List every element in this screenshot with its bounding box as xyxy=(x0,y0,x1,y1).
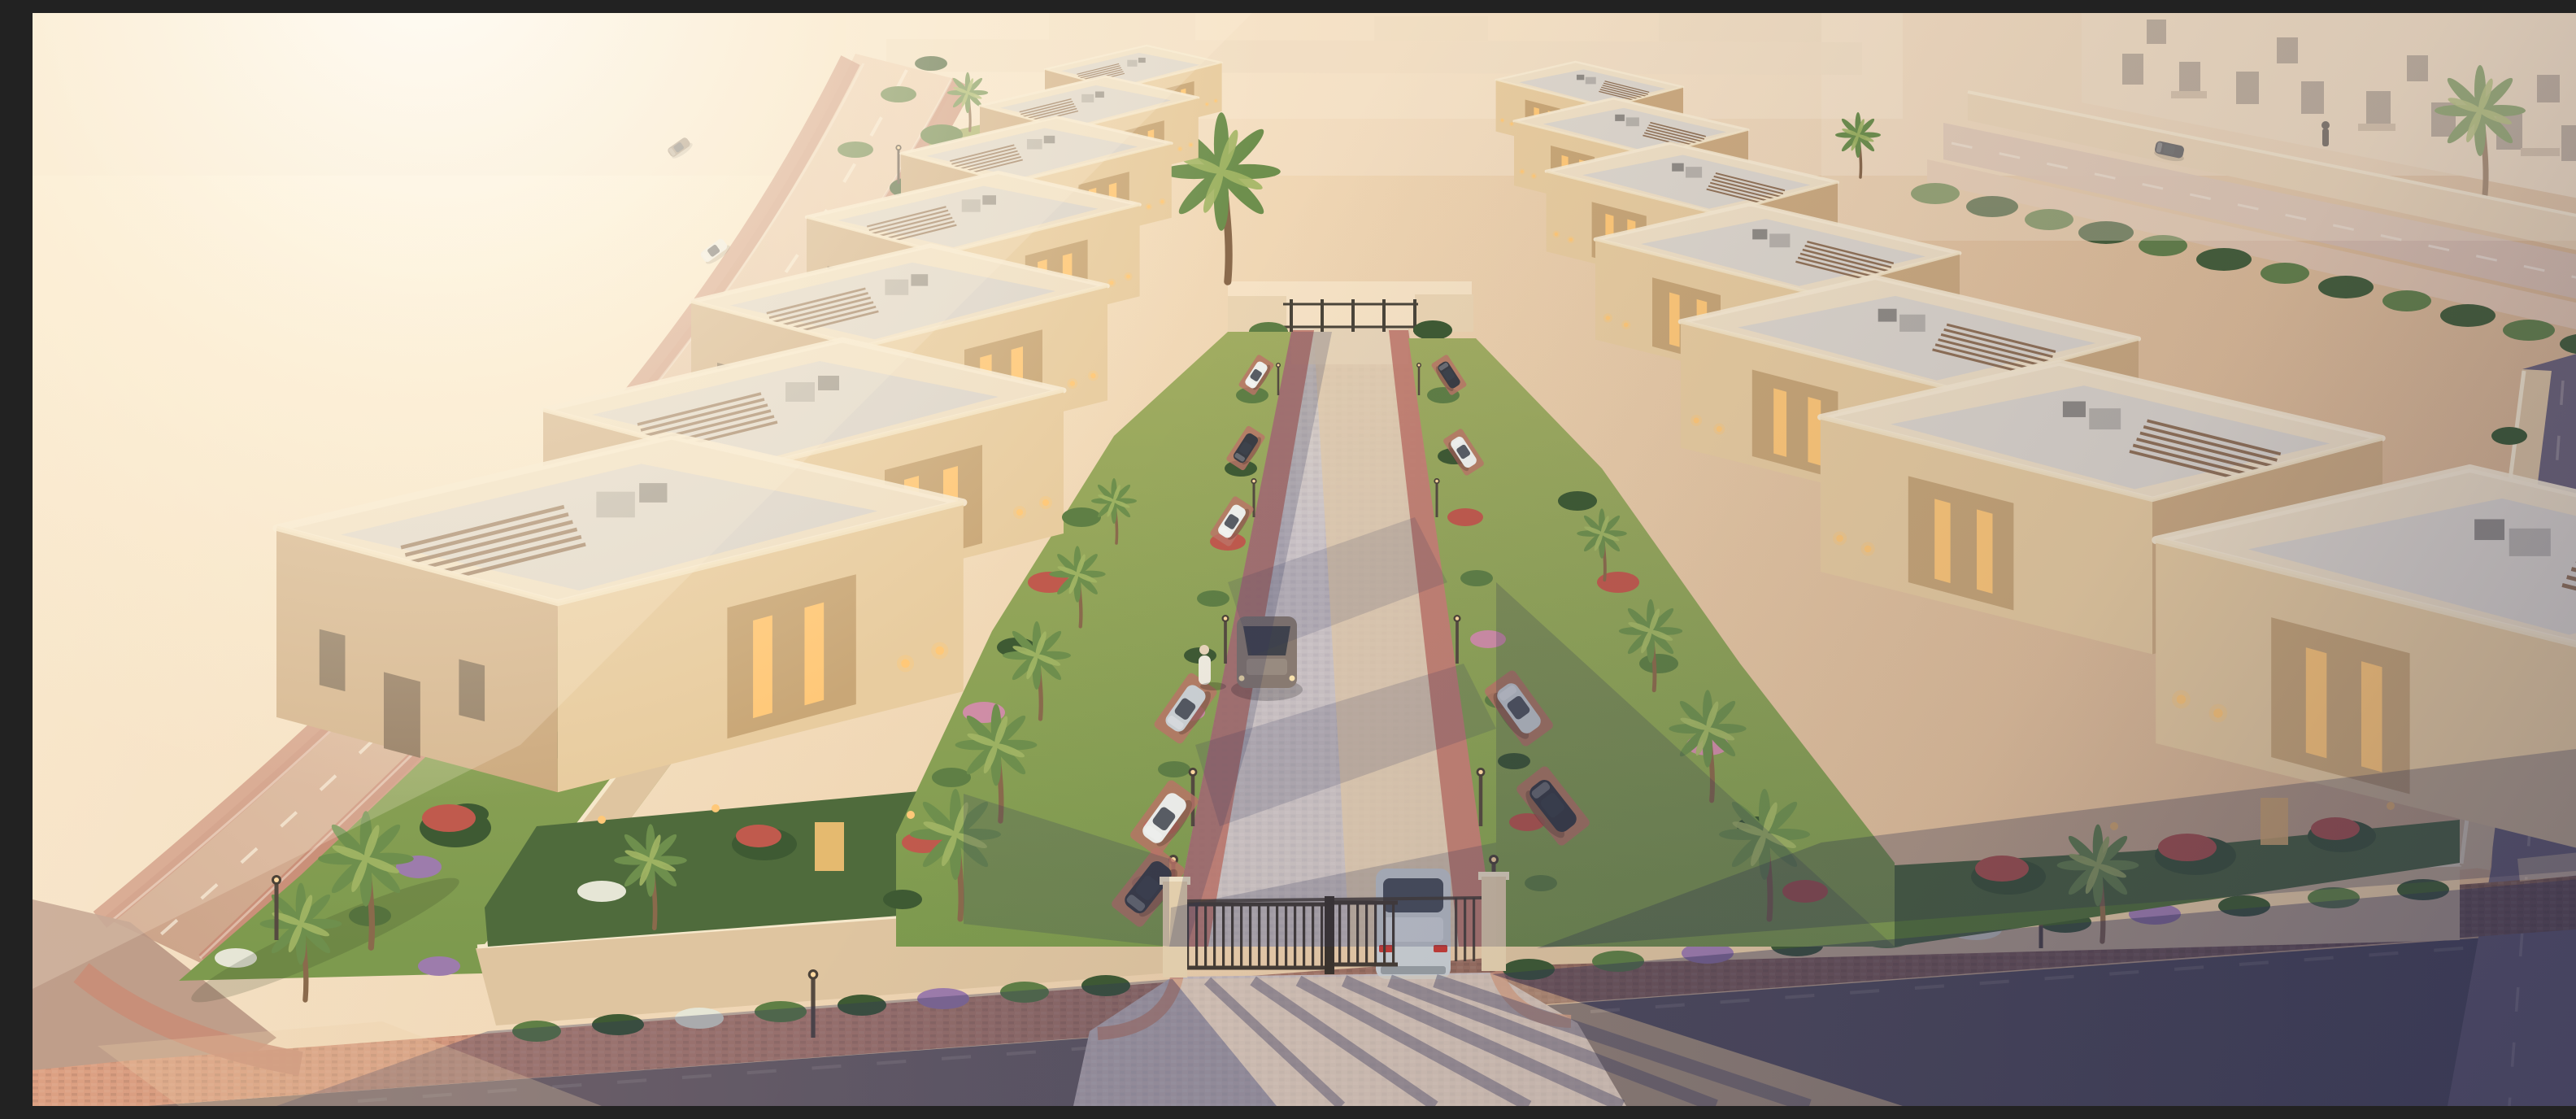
aerial-render xyxy=(33,13,2576,1106)
color-grade xyxy=(33,13,2576,1106)
